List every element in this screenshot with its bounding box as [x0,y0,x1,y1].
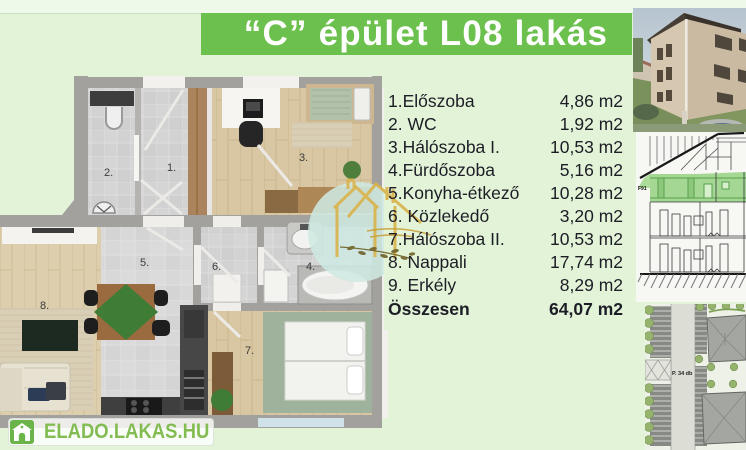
svg-text:2.: 2. [104,167,113,179]
svg-text:5.: 5. [140,257,149,269]
svg-text:8.: 8. [40,300,49,312]
svg-text:6.: 6. [212,261,221,273]
svg-text:P. 34 db: P. 34 db [672,371,693,377]
svg-text:F91: F91 [638,186,647,192]
svg-text:3.: 3. [299,152,308,164]
svg-text:1.: 1. [167,162,176,174]
svg-text:7.: 7. [245,345,254,357]
